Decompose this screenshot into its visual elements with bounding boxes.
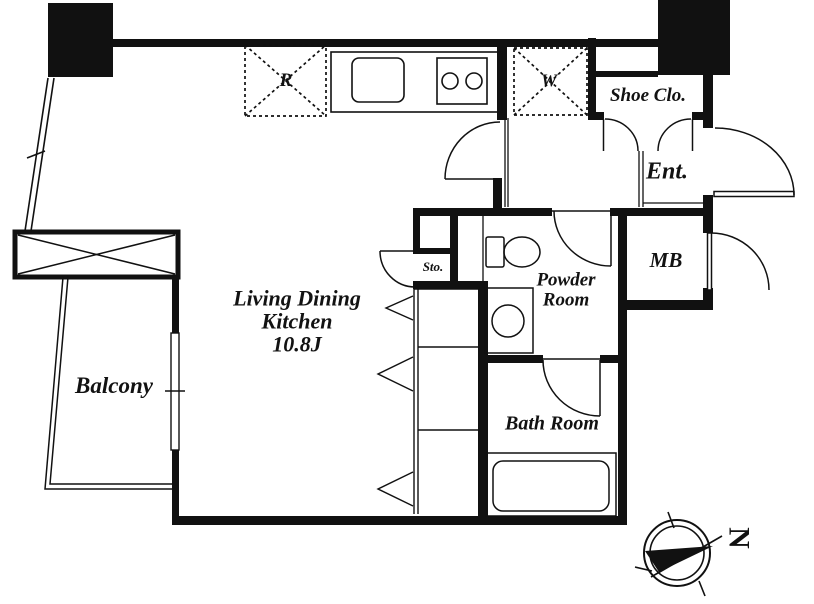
sink-icon [352, 58, 404, 102]
kitchen-counter [331, 52, 502, 112]
wall-bottom [172, 516, 627, 525]
wall-bath-top-right [600, 355, 618, 363]
bathtub-icon [486, 453, 616, 516]
door-powder-room [552, 211, 611, 266]
door-storage [380, 251, 415, 287]
room-label-storage: Sto. [423, 260, 444, 274]
compass-north-label: N [723, 527, 754, 549]
wall-storage-bottom [413, 281, 488, 289]
door-meter-box [708, 233, 770, 290]
wall-mid-b [610, 208, 713, 216]
floorplan: Living Dining Kitchen 10.8J Balcony Ent.… [0, 0, 814, 604]
wall-bath-top-left [478, 355, 543, 363]
wall-top [113, 39, 658, 47]
room-label-shoe-closet: Shoe Clo. [610, 86, 686, 106]
shaft-box [15, 232, 178, 277]
wall-below-mb [618, 300, 713, 310]
wall-right-a [703, 75, 713, 128]
wall-west-b [172, 450, 179, 525]
pillar-top-left [48, 3, 113, 77]
washer-mark: W [541, 72, 557, 91]
ldk-label-line1: Living Dining [233, 288, 361, 311]
powder-room-line2: Room [536, 290, 595, 310]
wall-washer-right [588, 38, 596, 120]
wall-shoecloset-top [596, 71, 658, 77]
toilet-icon [486, 237, 540, 267]
stove-icon [437, 58, 487, 104]
pillar-top-right [658, 0, 730, 75]
hallway-face-lines [505, 118, 508, 207]
powder-room-line1: Powder [536, 270, 595, 290]
refrigerator-mark: R [280, 71, 293, 91]
window-slanted [25, 78, 54, 231]
ldk-size: 10.8J [233, 333, 361, 356]
room-label-balcony: Balcony [75, 374, 153, 398]
wall-storage-divider [413, 248, 458, 254]
ldk-label-line2: Kitchen [233, 311, 361, 334]
window-west [165, 333, 185, 450]
room-label-ldk: Living Dining Kitchen 10.8J [233, 288, 361, 357]
door-front [714, 128, 794, 197]
room-label-bath-room: Bath Room [505, 414, 599, 435]
folding-door-mark-2 [378, 357, 413, 391]
wall-storage-left [413, 208, 420, 253]
folding-door-mark-3 [378, 472, 413, 506]
folding-door-mark-1 [386, 296, 413, 320]
compass-icon [635, 512, 722, 596]
door-shoe-closet-double [604, 119, 693, 151]
wall-east-wet-area [618, 216, 627, 525]
closet-column [378, 289, 478, 514]
room-label-meter-box: MB [650, 250, 683, 272]
washbasin-icon [485, 288, 533, 353]
door-bath-room [543, 359, 600, 416]
wall-shoecloset-bottom-right [692, 112, 713, 120]
room-label-powder-room: Powder Room [536, 270, 595, 310]
wall-mid-a [413, 208, 552, 216]
wall-shoecloset-bottom-left [588, 112, 604, 120]
floorplan-linework [0, 0, 814, 604]
wall-kitchen-b [493, 178, 502, 210]
room-label-entrance: Ent. [646, 160, 688, 185]
door-kitchen-hall [445, 122, 500, 179]
